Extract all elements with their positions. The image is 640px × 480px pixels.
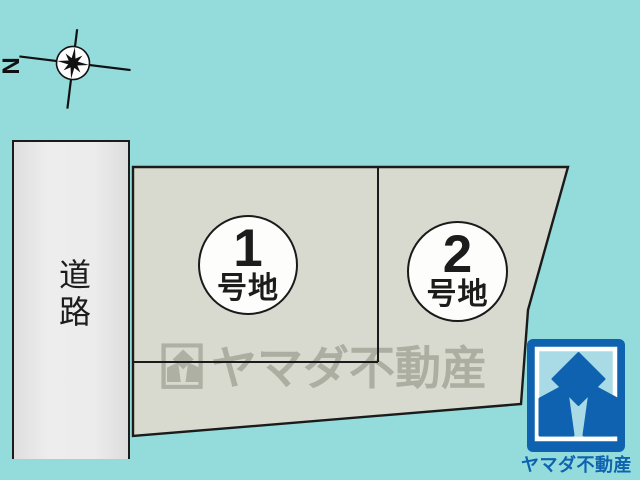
north-label: N (0, 52, 26, 80)
site-plan-canvas: ヤマダ不動産 N 道路 1 号地 2 号地 ヤマダ不動産 (0, 0, 640, 480)
yamada-logo-icon (527, 339, 625, 452)
road-label: 道路 (57, 258, 89, 332)
parcel-shape (133, 167, 568, 436)
watermark-text: ヤマダ不動産 (211, 342, 487, 394)
lot-2-badge: 2 号地 (407, 221, 508, 322)
lot-1-badge: 1 号地 (198, 215, 298, 315)
lot-1-number: 1 (233, 226, 262, 273)
compass-icon (14, 23, 135, 116)
lot-2-suffix: 号地 (427, 279, 489, 311)
site-plan-drawing: ヤマダ不動産 (0, 0, 640, 480)
lot-2-number: 2 (443, 232, 472, 279)
yamada-brand-label: ヤマダ不動産 (506, 451, 640, 477)
lot-1-suffix: 号地 (217, 273, 279, 305)
